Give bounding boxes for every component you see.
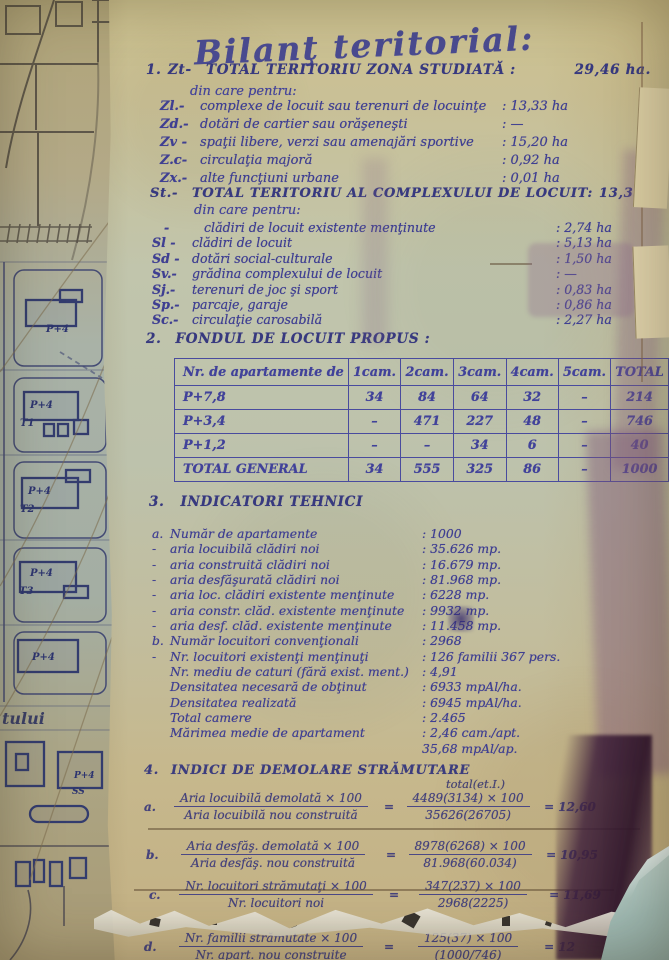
equals-sign: = bbox=[386, 848, 396, 862]
item-prefix: - bbox=[152, 541, 170, 556]
item-value: : 9932 mp. bbox=[422, 603, 630, 618]
list-item: Sd - dotări social-culturale : 1,50 ha bbox=[152, 251, 644, 266]
fraction-numerator: Aria locuibilă demolată × 100 bbox=[174, 791, 368, 807]
cell: 555 bbox=[401, 458, 454, 482]
section3-items: a.Număr de apartamente: 1000 -aria locui… bbox=[152, 526, 630, 756]
fraction-numerator: Aria desfăş. demolată × 100 bbox=[181, 839, 365, 855]
table-row: P+7,8 34 84 64 32 – 214 bbox=[175, 386, 669, 410]
item-code: Sp.- bbox=[152, 297, 192, 312]
sectionSt-subnote: din care pentru: bbox=[194, 203, 301, 218]
item-label: Număr locuitori convenţionali bbox=[170, 633, 422, 648]
fraction-numerator: 4489(3134) × 100 bbox=[407, 791, 530, 807]
list-item: Zl.- complexe de locuit sau terenuri de … bbox=[160, 99, 638, 117]
item-label: clădiri de locuit existente menţinute bbox=[204, 220, 556, 235]
sectionSt-items: - clădiri de locuit existente menţinute … bbox=[152, 220, 644, 328]
fraction-numerator: 125(37) × 100 bbox=[418, 931, 518, 947]
item-value: : 126 familii 367 pers. bbox=[422, 649, 630, 664]
item-label: circulaţia majoră bbox=[200, 153, 502, 168]
formula-letter: d. bbox=[144, 940, 162, 954]
plan-label: T3 bbox=[19, 586, 33, 597]
sectionSt-title: TOTAL TERITORIU AL COMPLEXULUI DE LOCUIT… bbox=[192, 186, 593, 201]
row-label: P+1,2 bbox=[175, 434, 349, 458]
item-value: : 13,33 ha bbox=[502, 99, 638, 114]
list-item: -Nr. locuitori existenţi menţinuţi: 126 … bbox=[152, 649, 630, 664]
item-value: : 6945 mpAl/ha. bbox=[422, 695, 630, 710]
formula-d: d. Nr. familii strămutate × 100 Nr. apar… bbox=[144, 931, 575, 960]
list-item: Mărimea medie de apartament: 2,46 cam./a… bbox=[152, 725, 630, 740]
table-header-row: Nr. de apartamente de 1cam. 2cam. 3cam. … bbox=[175, 359, 669, 386]
list-item: a.Număr de apartamente: 1000 bbox=[152, 526, 630, 541]
fraction-denominator: 81.968(60.034) bbox=[417, 855, 522, 870]
list-item: Z.c- circulaţia majoră : 0,92 ha bbox=[160, 153, 638, 171]
item-code: Sl - bbox=[152, 235, 192, 250]
item-prefix: b. bbox=[152, 633, 170, 648]
item-prefix: - bbox=[152, 618, 170, 633]
item-code: Sv.- bbox=[152, 266, 192, 281]
pencil-line bbox=[134, 889, 614, 891]
item-value: : 11.458 mp. bbox=[422, 618, 630, 633]
fraction-denominator: Nr. apart. nou construite bbox=[189, 947, 352, 960]
fraction-denominator: (1000/746) bbox=[429, 947, 508, 960]
sectionSt-value: 13,33 ha bbox=[599, 186, 668, 201]
cell: – bbox=[348, 410, 400, 434]
item-code: - bbox=[152, 220, 204, 235]
table-row: TOTAL GENERAL 34 555 325 86 – 1000 bbox=[175, 458, 669, 482]
cell: 214 bbox=[611, 386, 669, 410]
item-code: Sj.- bbox=[152, 282, 192, 297]
formula-result: = 10,95 bbox=[546, 848, 598, 862]
cell: – bbox=[558, 434, 610, 458]
cell: 34 bbox=[348, 458, 400, 482]
item-value: 35,68 mpAl/ap. bbox=[422, 741, 630, 756]
item-label: Densitatea necesară de obţinut bbox=[170, 679, 422, 694]
section4-note: total(et.I.) bbox=[446, 777, 505, 791]
formula-a: a. Aria locuibilă demolată × 100 Aria lo… bbox=[144, 791, 596, 822]
item-label: dotări de cartier sau orăşeneşti bbox=[200, 117, 502, 132]
item-label: circulaţie carosabilă bbox=[192, 312, 556, 327]
cell: 48 bbox=[506, 410, 558, 434]
formula-result: = 12 bbox=[544, 940, 575, 954]
table-header: 3cam. bbox=[453, 359, 506, 386]
list-item: Zd.- dotări de cartier sau orăşeneşti : … bbox=[160, 117, 638, 135]
fraction-denominator: 35626(26705) bbox=[419, 807, 517, 822]
section2-title: FONDUL DE LOCUIT PROPUS : bbox=[176, 331, 431, 347]
section1-items: Zl.- complexe de locuit sau terenuri de … bbox=[160, 99, 638, 189]
list-item: Sl - clădiri de locuit : 5,13 ha bbox=[152, 235, 644, 250]
item-code: Zx.- bbox=[160, 171, 200, 186]
list-item: Sc.- circulaţie carosabilă : 2,27 ha bbox=[152, 312, 644, 327]
list-item: Densitatea realizată: 6945 mpAl/ha. bbox=[152, 695, 630, 710]
pencil-arrow-mark bbox=[490, 263, 532, 265]
item-label: terenuri de joc şi sport bbox=[192, 282, 556, 297]
item-label: Nr. mediu de caturi (fără exist. ment.) bbox=[170, 664, 422, 679]
list-item: -aria desfăşurată clădiri noi: 81.968 mp… bbox=[152, 572, 630, 587]
section1-subnote: din care pentru: bbox=[190, 84, 297, 99]
item-label: aria construită clădiri noi bbox=[170, 557, 422, 572]
list-item: - clădiri de locuit existente menţinute … bbox=[152, 220, 644, 235]
section1-title: TOTAL TERITORIU ZONA STUDIATĂ : bbox=[206, 62, 574, 78]
sectionSt-code: St.- bbox=[150, 186, 192, 201]
plan-label: P+4 bbox=[45, 324, 69, 335]
list-item: -aria locuibilă clădiri noi: 35.626 mp. bbox=[152, 541, 630, 556]
page-edge-crease bbox=[641, 22, 643, 382]
item-value: : 2,74 ha bbox=[556, 220, 644, 235]
list-item: Total camere: 2.465 bbox=[152, 710, 630, 725]
item-prefix: - bbox=[152, 572, 170, 587]
formula-fraction: Nr. familii strămutate × 100 Nr. apart. … bbox=[162, 931, 380, 960]
item-label: Nr. locuitori existenţi menţinuţi bbox=[170, 649, 422, 664]
item-label: grădina complexului de locuit bbox=[192, 266, 556, 281]
item-value: : 0,83 ha bbox=[556, 282, 644, 297]
cell: 471 bbox=[401, 410, 454, 434]
plan-label: T1 bbox=[20, 418, 34, 429]
item-code: Sc.- bbox=[152, 312, 192, 327]
item-value: : 2.465 bbox=[422, 710, 630, 725]
row-label: P+3,4 bbox=[175, 410, 349, 434]
table-header: 2cam. bbox=[401, 359, 454, 386]
fraction-denominator: Nr. locuitori noi bbox=[222, 895, 330, 910]
site-plan-drawing: P+4 P+4 T1 P+4 T2 P+4 T3 P+4 tului P+4 S… bbox=[0, 0, 118, 960]
formula-fraction: 347(237) × 100 2968(2225) bbox=[407, 879, 539, 910]
balance-sheet-page: Bilanţ teritorial: 1. Zt- TOTAL TERITORI… bbox=[94, 0, 669, 960]
list-item: Sp.- parcaje, garaje : 0,86 ha bbox=[152, 297, 644, 312]
item-label: parcaje, garaje bbox=[192, 297, 556, 312]
fraction-numerator: 347(237) × 100 bbox=[419, 879, 527, 895]
cell: 34 bbox=[348, 386, 400, 410]
cell: 64 bbox=[453, 386, 506, 410]
section4-number: 4. bbox=[144, 763, 159, 778]
item-label: Mărimea medie de apartament bbox=[170, 725, 422, 740]
table-row: P+1,2 – – 34 6 – 40 bbox=[175, 434, 669, 458]
formula-result: = 12,60 bbox=[544, 800, 596, 814]
table-header: TOTAL bbox=[611, 359, 669, 386]
item-code: Z.c- bbox=[160, 153, 200, 168]
item-value: : 4,91 bbox=[422, 664, 630, 679]
item-label: aria locuibilă clădiri noi bbox=[170, 541, 422, 556]
table-header: 4cam. bbox=[506, 359, 558, 386]
document-photo: P+4 P+4 T1 P+4 T2 P+4 T3 P+4 tului P+4 S… bbox=[0, 0, 669, 960]
item-value: : 2968 bbox=[422, 633, 630, 648]
cell: 86 bbox=[506, 458, 558, 482]
cell: 34 bbox=[453, 434, 506, 458]
plan-label: P+4 bbox=[73, 771, 95, 781]
fraction-denominator: Aria locuibilă nou construită bbox=[178, 807, 363, 822]
plan-label: T2 bbox=[20, 504, 34, 515]
section1-value: 29,46 ha. bbox=[574, 62, 651, 78]
cell: 6 bbox=[506, 434, 558, 458]
section1-heading: 1. Zt- TOTAL TERITORIU ZONA STUDIATĂ : 2… bbox=[146, 62, 651, 78]
formula-fraction: Nr. locuitori strămutaţi × 100 Nr. locui… bbox=[167, 879, 385, 910]
item-value: : 81.968 mp. bbox=[422, 572, 630, 587]
item-value: : 0,86 ha bbox=[556, 297, 644, 312]
formula-letter: a. bbox=[144, 800, 162, 814]
list-item: Nr. mediu de caturi (fără exist. ment.):… bbox=[152, 664, 630, 679]
section4-heading: 4. INDICI DE DEMOLARE STRĂMUTARE bbox=[144, 763, 470, 778]
item-code: Zl.- bbox=[160, 99, 200, 114]
item-value: : 0,92 ha bbox=[502, 153, 638, 168]
list-item: Densitatea necesară de obţinut: 6933 mpA… bbox=[152, 679, 630, 694]
list-item: Sv.- grădina complexului de locuit : — bbox=[152, 266, 644, 281]
formula-b: b. Aria desfăş. demolată × 100 Aria desf… bbox=[146, 839, 598, 870]
cell: – bbox=[401, 434, 454, 458]
item-prefix: - bbox=[152, 603, 170, 618]
item-label: clădiri de locuit bbox=[192, 235, 556, 250]
formula-c: c. Nr. locuitori strămutaţi × 100 Nr. lo… bbox=[149, 879, 601, 910]
cell: 746 bbox=[611, 410, 669, 434]
table-header: Nr. de apartamente de bbox=[175, 359, 349, 386]
item-label: aria loc. clădiri existente menţinute bbox=[170, 587, 422, 602]
table-header: 5cam. bbox=[558, 359, 610, 386]
table-header: 1cam. bbox=[348, 359, 400, 386]
fraction-numerator: 8978(6268) × 100 bbox=[409, 839, 532, 855]
formula-fraction: 8978(6268) × 100 81.968(60.034) bbox=[404, 839, 536, 870]
item-value: : 2,27 ha bbox=[556, 312, 644, 327]
section3-title: INDICATORI TEHNICI bbox=[181, 494, 364, 510]
item-label: aria constr. clăd. existente menţinute bbox=[170, 603, 422, 618]
formula-fraction: 125(37) × 100 (1000/746) bbox=[402, 931, 534, 960]
item-value: : 15,20 ha bbox=[502, 135, 638, 150]
item-value: : — bbox=[556, 266, 644, 281]
list-item: -aria constr. clăd. existente menţinute:… bbox=[152, 603, 630, 618]
list-item: 35,68 mpAl/ap. bbox=[152, 741, 630, 756]
fraction-numerator: Nr. familii strămutate × 100 bbox=[179, 931, 363, 947]
item-prefix: - bbox=[152, 557, 170, 572]
item-label: aria desfăşurată clădiri noi bbox=[170, 572, 422, 587]
formula-fraction: Aria desfăş. demolată × 100 Aria desfăş.… bbox=[164, 839, 382, 870]
item-code: Sd - bbox=[152, 251, 192, 266]
cell: 325 bbox=[453, 458, 506, 482]
fraction-denominator: 2968(2225) bbox=[432, 895, 514, 910]
fraction-denominator: Aria desfăş. nou construită bbox=[185, 855, 361, 870]
cell: 32 bbox=[506, 386, 558, 410]
item-prefix: a. bbox=[152, 526, 170, 541]
item-label: Număr de apartamente bbox=[170, 526, 422, 541]
table-row: P+3,4 – 471 227 48 – 746 bbox=[175, 410, 669, 434]
cell: 1000 bbox=[611, 458, 669, 482]
item-value: : — bbox=[502, 117, 638, 132]
list-item: -aria construită clădiri noi: 16.679 mp. bbox=[152, 557, 630, 572]
plan-street-name: tului bbox=[2, 709, 45, 728]
cell: – bbox=[558, 458, 610, 482]
item-label: spaţii libere, verzi sau amenajări sport… bbox=[200, 135, 502, 150]
item-value: : 0,01 ha bbox=[502, 171, 638, 186]
item-label: Total camere bbox=[170, 710, 422, 725]
plan-label: P+4 bbox=[27, 486, 51, 497]
item-value: : 35.626 mp. bbox=[422, 541, 630, 556]
apartments-table: Nr. de apartamente de 1cam. 2cam. 3cam. … bbox=[174, 358, 669, 482]
plan-label: SS bbox=[72, 787, 85, 797]
plan-label: P+4 bbox=[29, 400, 53, 411]
list-item: Sj.- terenuri de joc şi sport : 0,83 ha bbox=[152, 282, 644, 297]
item-prefix: - bbox=[152, 587, 170, 602]
equals-sign: = bbox=[384, 800, 394, 814]
section3-heading: 3. INDICATORI TEHNICI bbox=[149, 494, 363, 510]
item-label: aria desf. clăd. existente menţinute bbox=[170, 618, 422, 633]
cell: – bbox=[348, 434, 400, 458]
plan-label: P+4 bbox=[29, 568, 53, 579]
item-value: : 1000 bbox=[422, 526, 630, 541]
item-value: : 5,13 ha bbox=[556, 235, 644, 250]
item-value: : 16.679 mp. bbox=[422, 557, 630, 572]
formula-fraction: 4489(3134) × 100 35626(26705) bbox=[402, 791, 534, 822]
item-value: : 6933 mpAl/ha. bbox=[422, 679, 630, 694]
list-item: Zv - spaţii libere, verzi sau amenajări … bbox=[160, 135, 638, 153]
list-item: b.Număr locuitori convenţionali: 2968 bbox=[152, 633, 630, 648]
list-item: -aria loc. clădiri existente menţinute: … bbox=[152, 587, 630, 602]
section1-number: 1. bbox=[146, 62, 168, 78]
cell: 227 bbox=[453, 410, 506, 434]
item-value: : 1,50 ha bbox=[556, 251, 644, 266]
cell: 40 bbox=[611, 434, 669, 458]
fraction-numerator: Nr. locuitori strămutaţi × 100 bbox=[179, 879, 373, 895]
item-code: Zv - bbox=[160, 135, 200, 150]
item-label: Densitatea realizată bbox=[170, 695, 422, 710]
sectionSt-heading: St.- TOTAL TERITORIU AL COMPLEXULUI DE L… bbox=[150, 186, 655, 201]
section1-code: Zt- bbox=[168, 62, 206, 78]
section2-heading: 2. FONDUL DE LOCUIT PROPUS : bbox=[146, 331, 430, 347]
cell: – bbox=[558, 386, 610, 410]
row-label: P+7,8 bbox=[175, 386, 349, 410]
item-label: complexe de locuit sau terenuri de locui… bbox=[200, 99, 502, 114]
cell: 84 bbox=[401, 386, 454, 410]
list-item: -aria desf. clăd. existente menţinute: 1… bbox=[152, 618, 630, 633]
item-value: : 2,46 cam./apt. bbox=[422, 725, 630, 740]
item-label: alte funcţiuni urbane bbox=[200, 171, 502, 186]
section2-number: 2. bbox=[146, 331, 162, 347]
section3-number: 3. bbox=[149, 494, 165, 510]
item-code: Zd.- bbox=[160, 117, 200, 132]
section4-title: INDICI DE DEMOLARE STRĂMUTARE bbox=[171, 763, 470, 778]
cell: – bbox=[558, 410, 610, 434]
formula-letter: b. bbox=[146, 848, 164, 862]
equals-sign: = bbox=[384, 940, 394, 954]
row-label: TOTAL GENERAL bbox=[175, 458, 349, 482]
item-prefix: - bbox=[152, 649, 170, 664]
formula-fraction: Aria locuibilă demolată × 100 Aria locui… bbox=[162, 791, 380, 822]
pencil-line bbox=[148, 828, 640, 830]
item-value: : 6228 mp. bbox=[422, 587, 630, 602]
plan-label: P+4 bbox=[31, 652, 55, 663]
